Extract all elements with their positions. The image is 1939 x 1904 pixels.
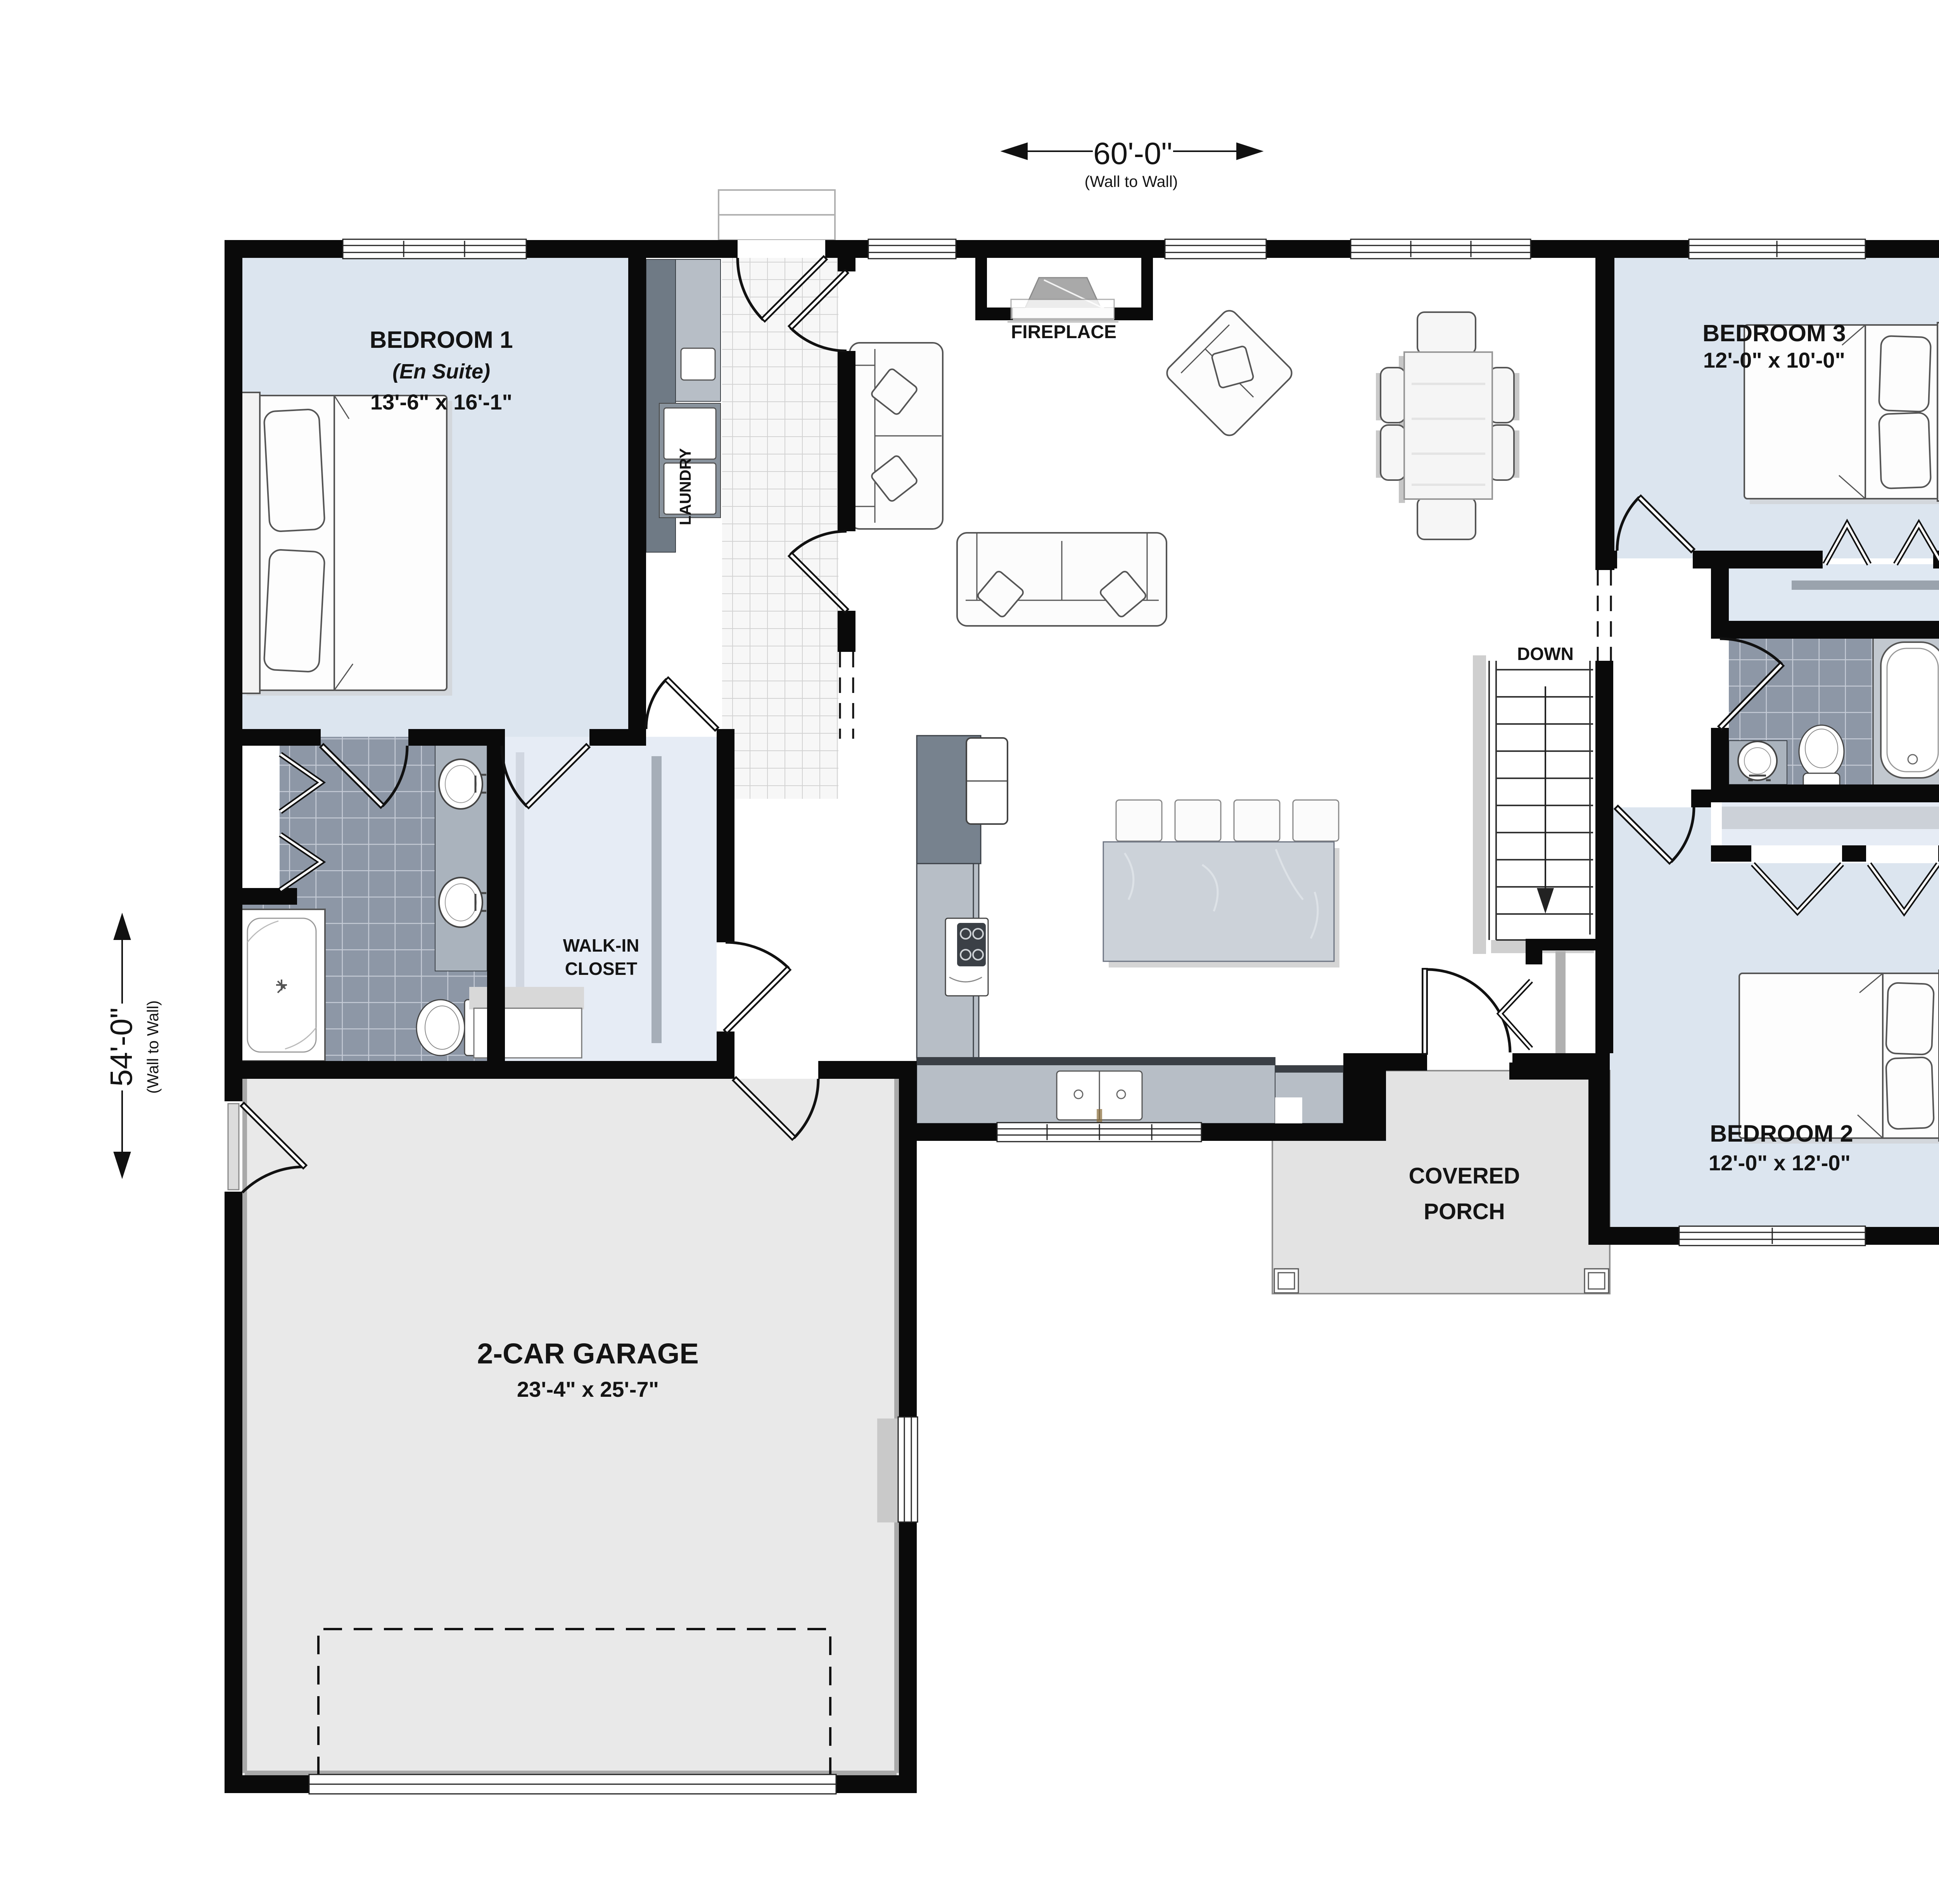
svg-text:BEDROOM 3: BEDROOM 3 (1702, 320, 1846, 346)
svg-text:BEDROOM 1: BEDROOM 1 (370, 327, 513, 353)
svg-text:PORCH: PORCH (1424, 1199, 1505, 1224)
svg-text:(Wall to Wall): (Wall to Wall) (144, 1000, 162, 1094)
svg-text:DOWN: DOWN (1517, 644, 1574, 664)
svg-text:LAUNDRY: LAUNDRY (676, 448, 694, 525)
svg-text:2-CAR GARAGE: 2-CAR GARAGE (477, 1337, 698, 1370)
svg-text:COVERED: COVERED (1409, 1163, 1520, 1189)
svg-text:WALK-IN: WALK-IN (563, 935, 639, 955)
svg-text:12'-0" x 10'-0": 12'-0" x 10'-0" (1703, 348, 1845, 372)
svg-text:13'-6" x 16'-1": 13'-6" x 16'-1" (370, 390, 512, 414)
svg-text:(En Suite): (En Suite) (392, 360, 490, 383)
svg-text:12'-0" x 12'-0": 12'-0" x 12'-0" (1709, 1151, 1851, 1175)
svg-text:60'-0": 60'-0" (1093, 136, 1172, 171)
svg-text:CLOSET: CLOSET (565, 959, 638, 979)
svg-text:FIREPLACE: FIREPLACE (1011, 322, 1116, 342)
svg-text:(Wall to Wall): (Wall to Wall) (1085, 173, 1178, 190)
svg-text:23'-4" x 25'-7": 23'-4" x 25'-7" (517, 1377, 659, 1401)
svg-text:54'-0": 54'-0" (104, 1007, 138, 1087)
svg-text:BEDROOM 2: BEDROOM 2 (1710, 1120, 1853, 1147)
